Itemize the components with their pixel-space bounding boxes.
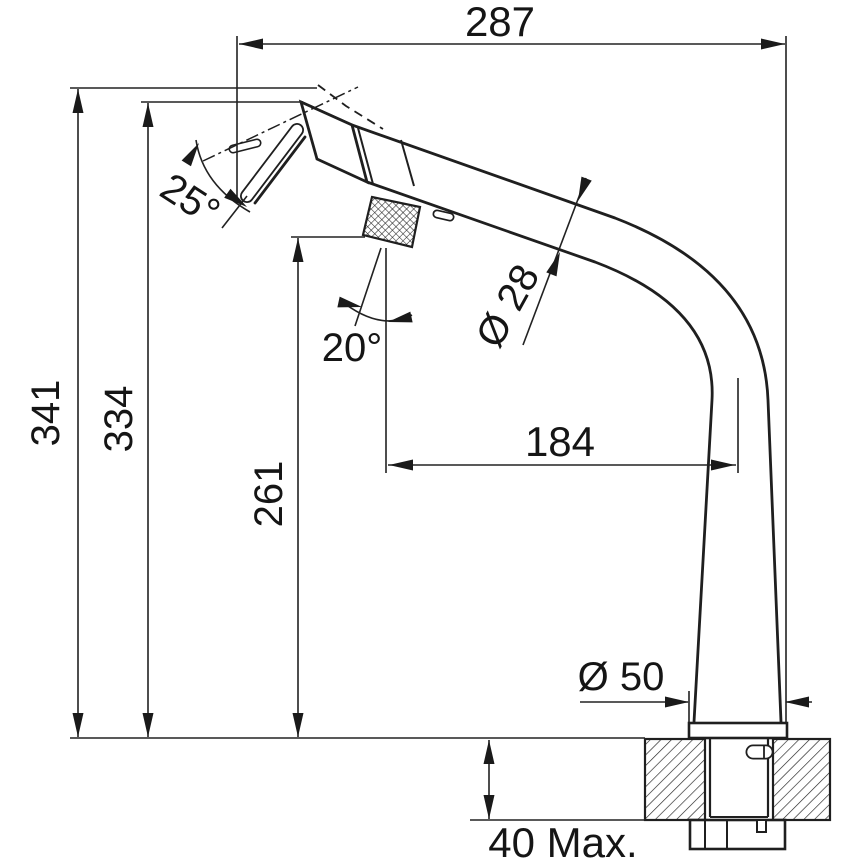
faucet-technical-drawing: 287 341 334 261 184 Ø 28 Ø 50 40 Max. 25… — [0, 0, 860, 860]
spray-button — [437, 214, 450, 217]
counter-cross-section — [645, 739, 830, 820]
lever-angle-label: 20° — [322, 326, 383, 370]
dimension-lines — [70, 36, 812, 820]
spray-selector-knob — [363, 197, 420, 247]
mounting-nut — [690, 820, 785, 849]
spray-head-housing — [301, 102, 367, 182]
spout-reach-label: 184 — [525, 418, 595, 465]
spray-head-swivel-angle-label: 25° — [153, 165, 228, 235]
overall-height-label: 341 — [24, 380, 68, 447]
spout-outer-contour — [301, 102, 781, 722]
base-flange — [689, 723, 787, 738]
knob-height-label: 261 — [247, 461, 291, 528]
drawing-canvas: 287 341 334 261 184 Ø 28 Ø 50 40 Max. 25… — [0, 0, 860, 860]
spout-tip-height-label: 334 — [97, 386, 141, 453]
overall-width-label: 287 — [465, 0, 535, 45]
base-diameter-label: Ø 50 — [578, 655, 665, 699]
counter-thickness-label: 40 Max. — [488, 819, 637, 860]
spout-diameter-label: Ø 28 — [468, 257, 549, 354]
faucet-body — [301, 102, 781, 722]
